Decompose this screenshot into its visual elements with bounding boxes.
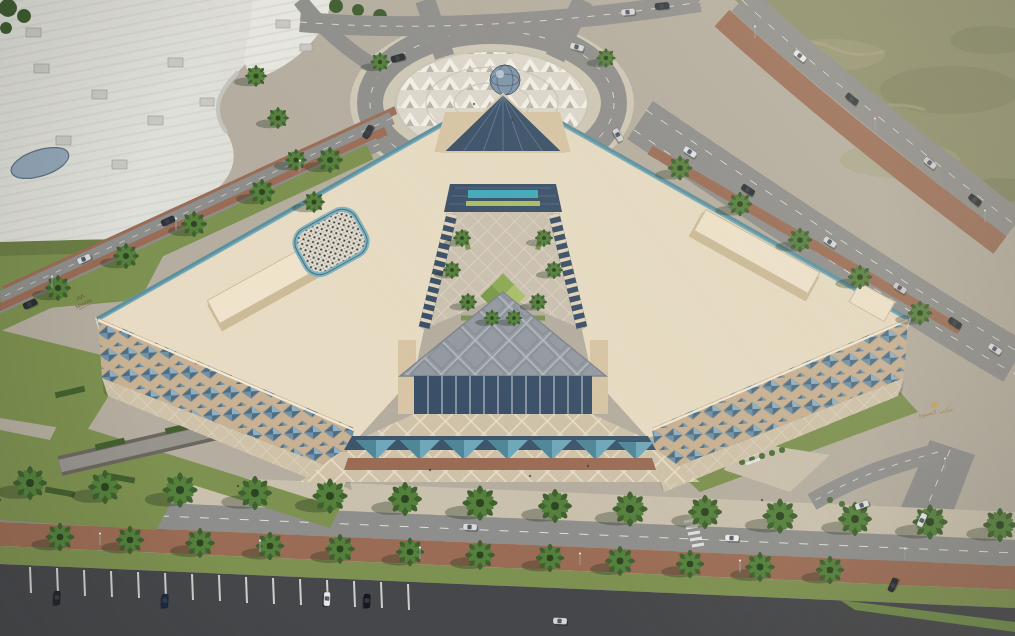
- aerial-render: Marriott مكتب الصفوة: [0, 0, 1015, 636]
- render-canvas: Marriott مكتب الصفوة: [0, 0, 1015, 636]
- vignette-overlay: [0, 0, 1015, 636]
